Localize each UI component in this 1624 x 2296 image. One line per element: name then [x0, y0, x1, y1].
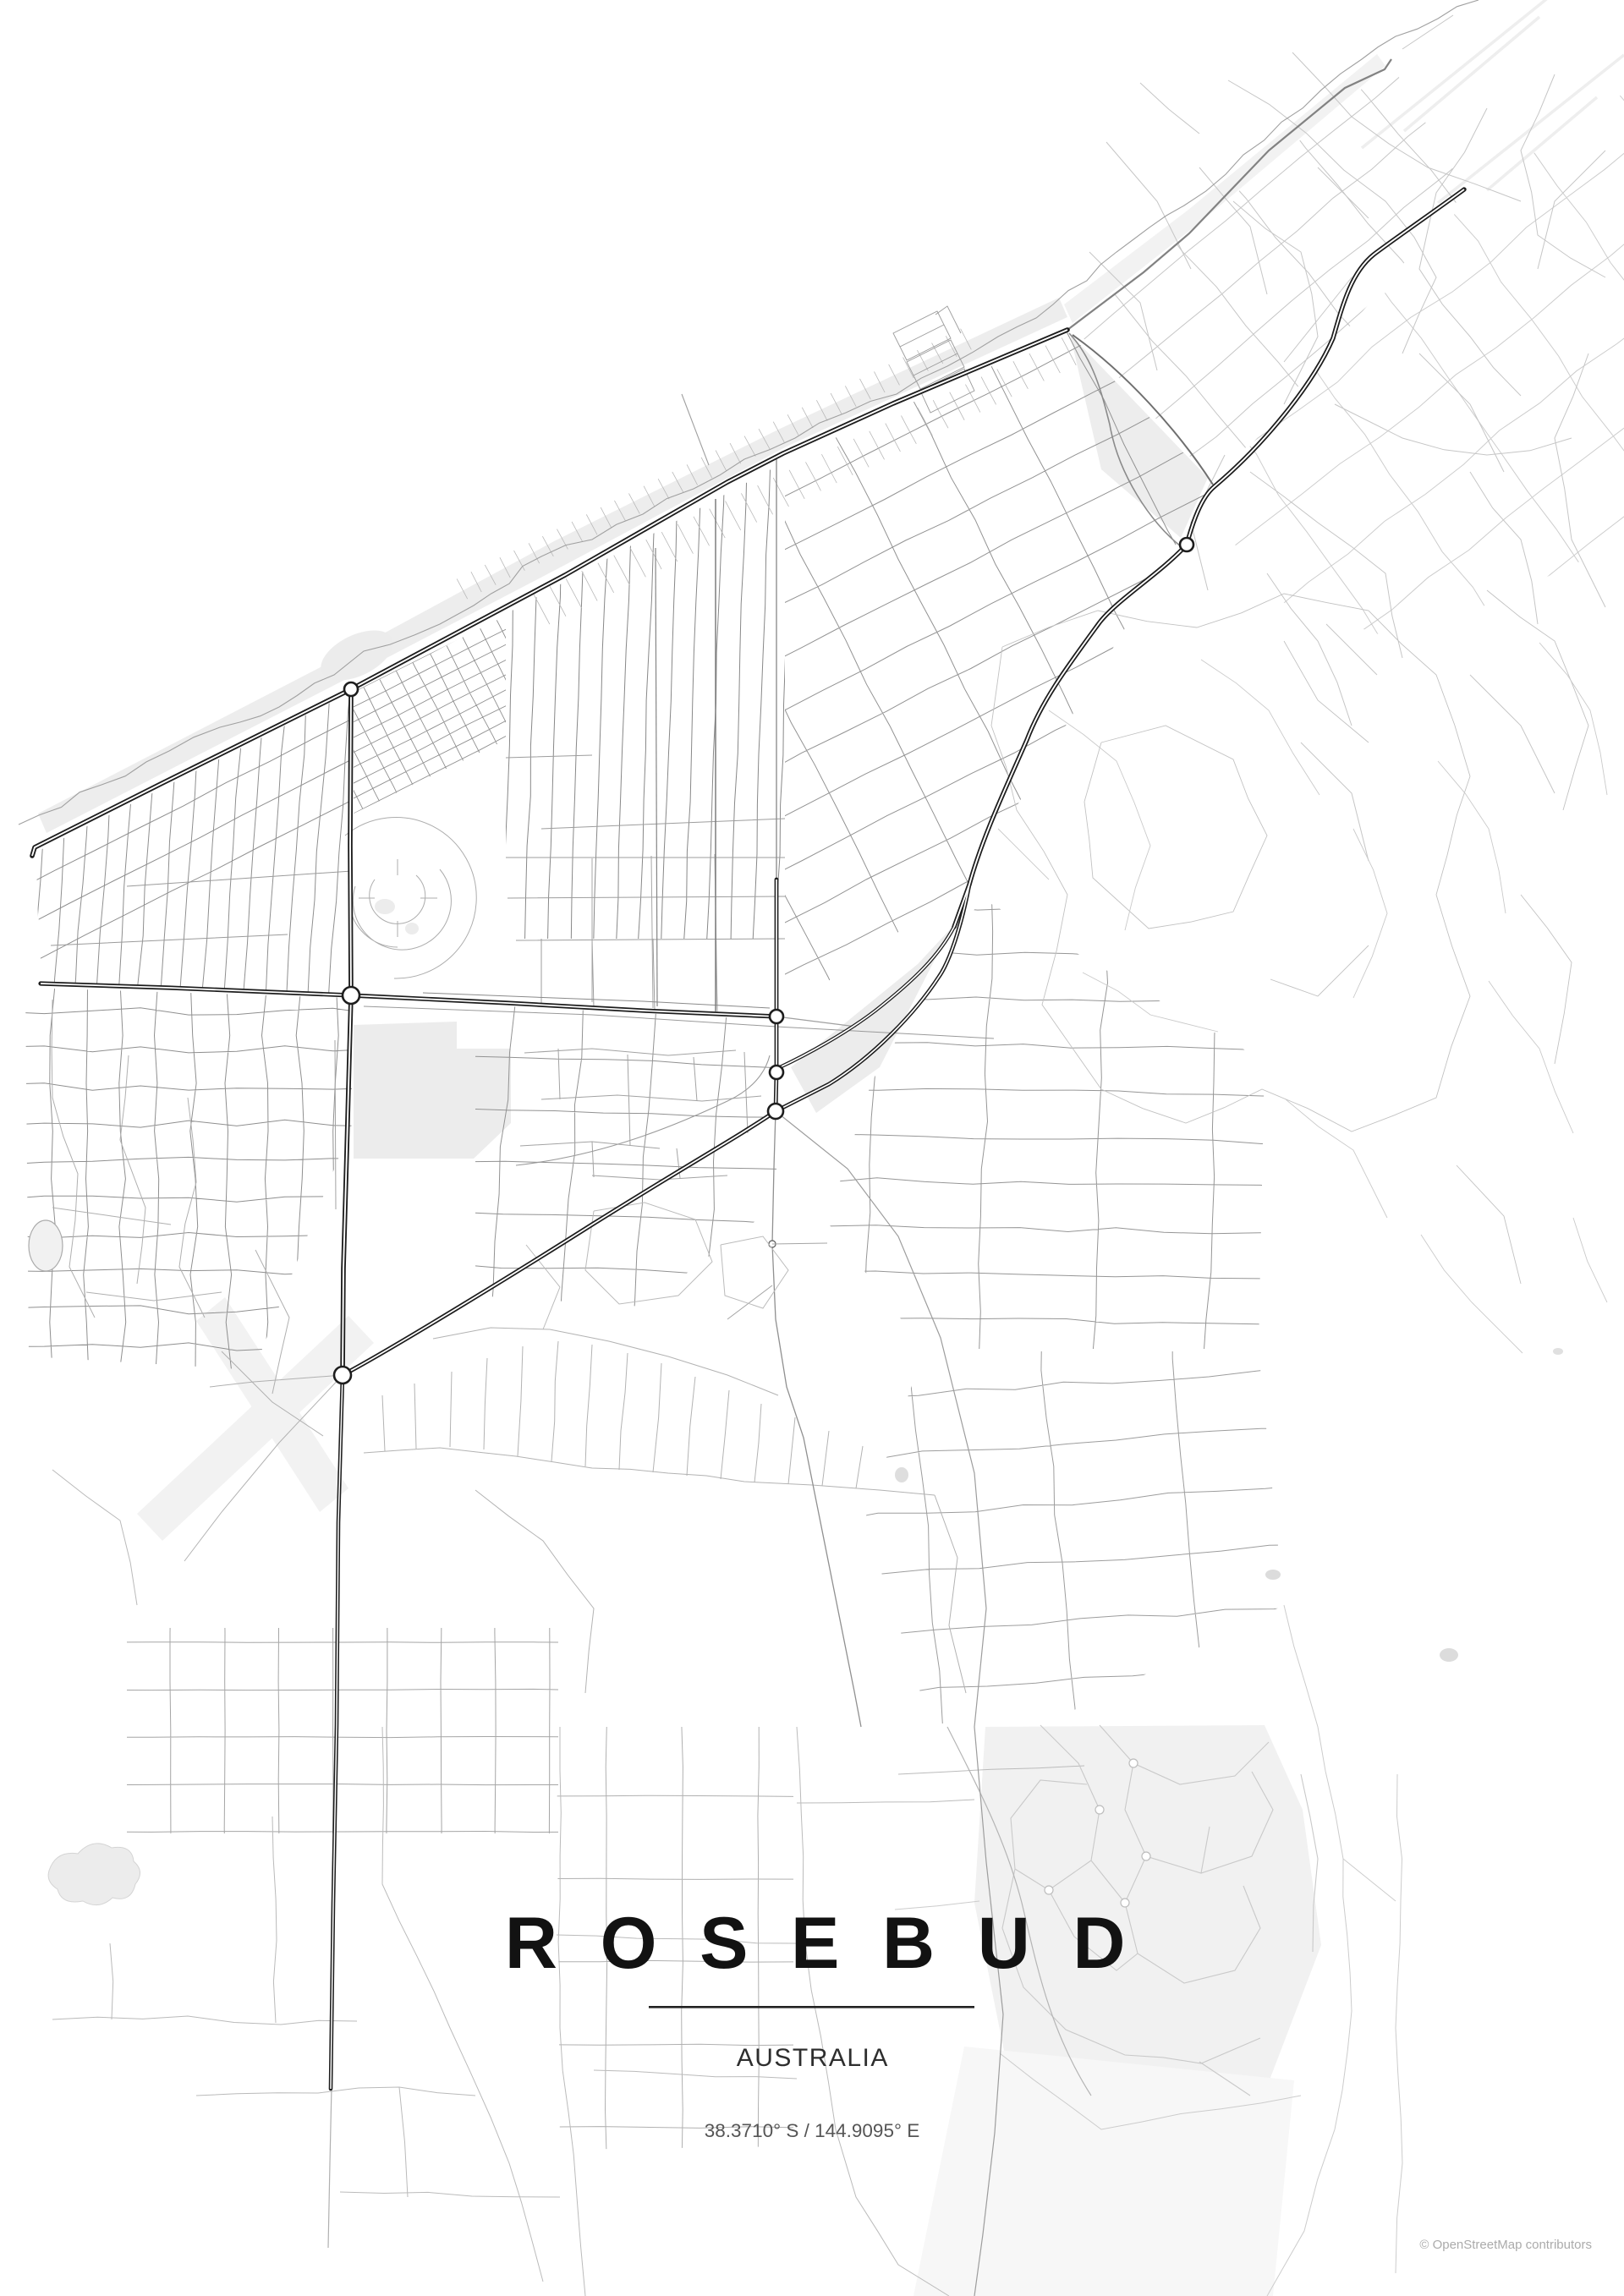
svg-text:AUSTRALIA: AUSTRALIA — [737, 2044, 889, 2072]
svg-text:38.3710° S / 144.9095° E: 38.3710° S / 144.9095° E — [705, 2120, 919, 2141]
svg-text:© OpenStreetMap contributors: © OpenStreetMap contributors — [1419, 2238, 1592, 2252]
svg-text:ROSEBUD: ROSEBUD — [505, 1903, 1168, 1984]
